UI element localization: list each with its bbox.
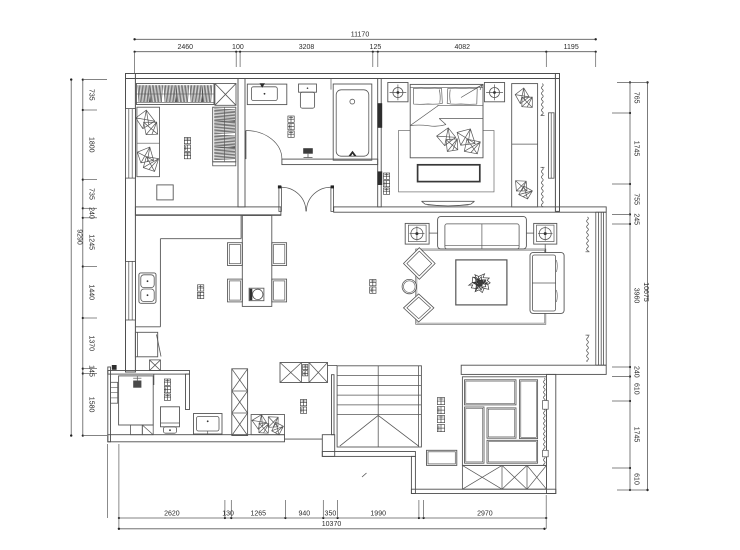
svg-text:240: 240 xyxy=(633,366,640,378)
svg-text:350: 350 xyxy=(325,510,337,517)
svg-text:610: 610 xyxy=(633,473,640,485)
svg-text:735: 735 xyxy=(88,188,95,200)
svg-text:2970: 2970 xyxy=(477,510,493,517)
svg-text:1440: 1440 xyxy=(88,285,95,301)
svg-text:1745: 1745 xyxy=(633,141,640,157)
svg-text:11170: 11170 xyxy=(351,32,370,39)
svg-text:130: 130 xyxy=(222,510,234,517)
svg-text:100: 100 xyxy=(232,44,244,51)
svg-text:125: 125 xyxy=(370,44,382,51)
svg-text:1800: 1800 xyxy=(88,137,95,153)
svg-text:145: 145 xyxy=(88,365,95,377)
svg-text:2620: 2620 xyxy=(164,510,180,517)
svg-text:9290: 9290 xyxy=(76,229,83,245)
svg-text:1990: 1990 xyxy=(370,510,386,517)
svg-text:610: 610 xyxy=(633,383,640,395)
svg-text:10675: 10675 xyxy=(642,282,649,302)
svg-text:1265: 1265 xyxy=(251,510,267,517)
svg-text:940: 940 xyxy=(298,510,310,517)
svg-text:735: 735 xyxy=(88,89,95,101)
svg-text:755: 755 xyxy=(633,193,640,205)
svg-text:1245: 1245 xyxy=(88,234,95,250)
svg-text:1580: 1580 xyxy=(88,397,95,413)
svg-text:1195: 1195 xyxy=(564,44,579,51)
svg-text:2460: 2460 xyxy=(178,44,194,51)
svg-text:240: 240 xyxy=(88,207,95,219)
svg-text:1745: 1745 xyxy=(633,427,640,443)
svg-text:10370: 10370 xyxy=(322,521,342,528)
svg-text:245: 245 xyxy=(633,213,640,225)
svg-text:4082: 4082 xyxy=(455,44,471,51)
svg-text:3208: 3208 xyxy=(299,44,315,51)
svg-text:1370: 1370 xyxy=(88,336,95,352)
svg-text:765: 765 xyxy=(633,92,640,104)
svg-text:3960: 3960 xyxy=(633,288,640,304)
